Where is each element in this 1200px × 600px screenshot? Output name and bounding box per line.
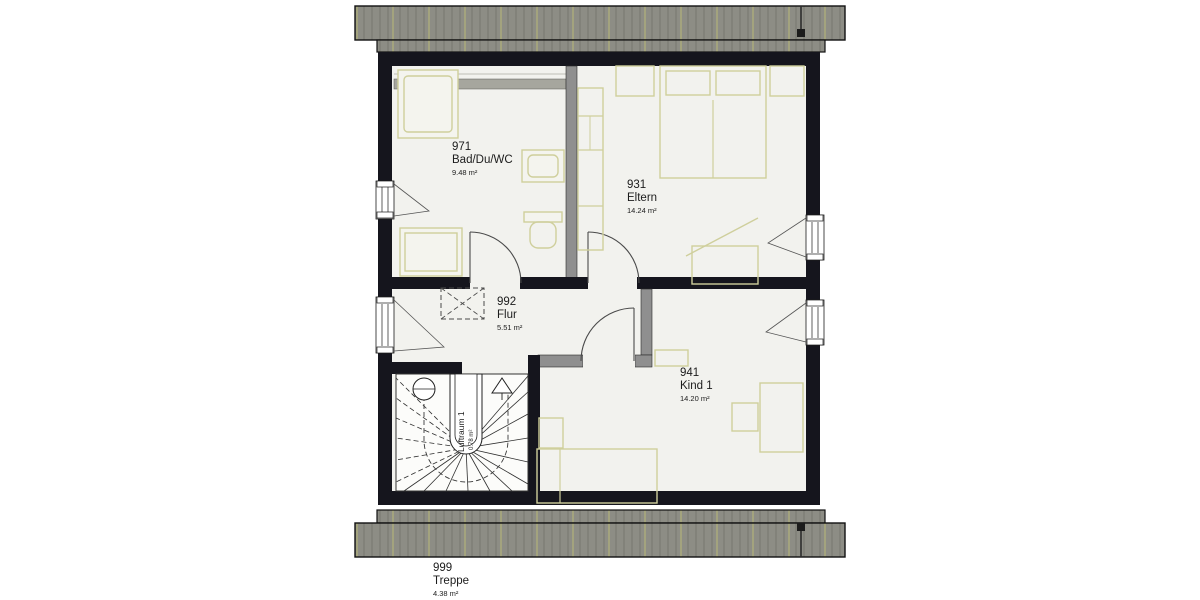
wall-stair-east [528, 355, 540, 491]
room-name: Treppe [433, 575, 469, 587]
roof-strip-top [355, 6, 845, 52]
room-number: 999 [433, 562, 452, 574]
wall-stair-north [392, 362, 462, 374]
room-name: Bad/Du/WC [452, 154, 513, 166]
room-name: Kind 1 [680, 380, 713, 392]
label-treppe: 999 Treppe 4.38 m² [433, 562, 469, 598]
stair-void: Luftraum 1 0.78 m² [450, 374, 482, 454]
wall-bad-south [392, 277, 470, 289]
wall-flur-kind [641, 289, 652, 355]
room-number: 971 [452, 141, 471, 153]
wall-bad-eltern [566, 66, 577, 278]
wall-flur-north [520, 277, 588, 289]
floor-plan-page: Luftraum 1 0.78 m² [0, 0, 1200, 600]
bathtub [398, 70, 458, 138]
room-area: 4.38 m² [433, 589, 459, 598]
room-area: 14.24 m² [627, 206, 657, 215]
luftraum-area: 0.78 m² [469, 430, 475, 450]
wall-stub-kind-west [538, 355, 583, 367]
wall-stub-kind-east [635, 355, 652, 367]
washbasin [522, 150, 564, 182]
room-name: Eltern [627, 192, 657, 204]
room-area: 5.51 m² [497, 323, 523, 332]
room-number: 931 [627, 179, 646, 191]
room-name: Flur [497, 309, 517, 321]
floor-plan-drawing: Luftraum 1 0.78 m² [0, 0, 1200, 600]
room-area: 9.48 m² [452, 168, 478, 177]
room-number: 992 [497, 296, 516, 308]
stair-start-icon [413, 378, 435, 400]
room-number: 941 [680, 367, 699, 379]
room-area: 14.20 m² [680, 394, 710, 403]
luftraum-label: Luftraum 1 [456, 411, 466, 452]
wall-eltern-kind [637, 277, 806, 289]
roof-strip-bottom [355, 510, 845, 557]
staircase: Luftraum 1 0.78 m² [396, 374, 528, 491]
shower [400, 228, 462, 276]
